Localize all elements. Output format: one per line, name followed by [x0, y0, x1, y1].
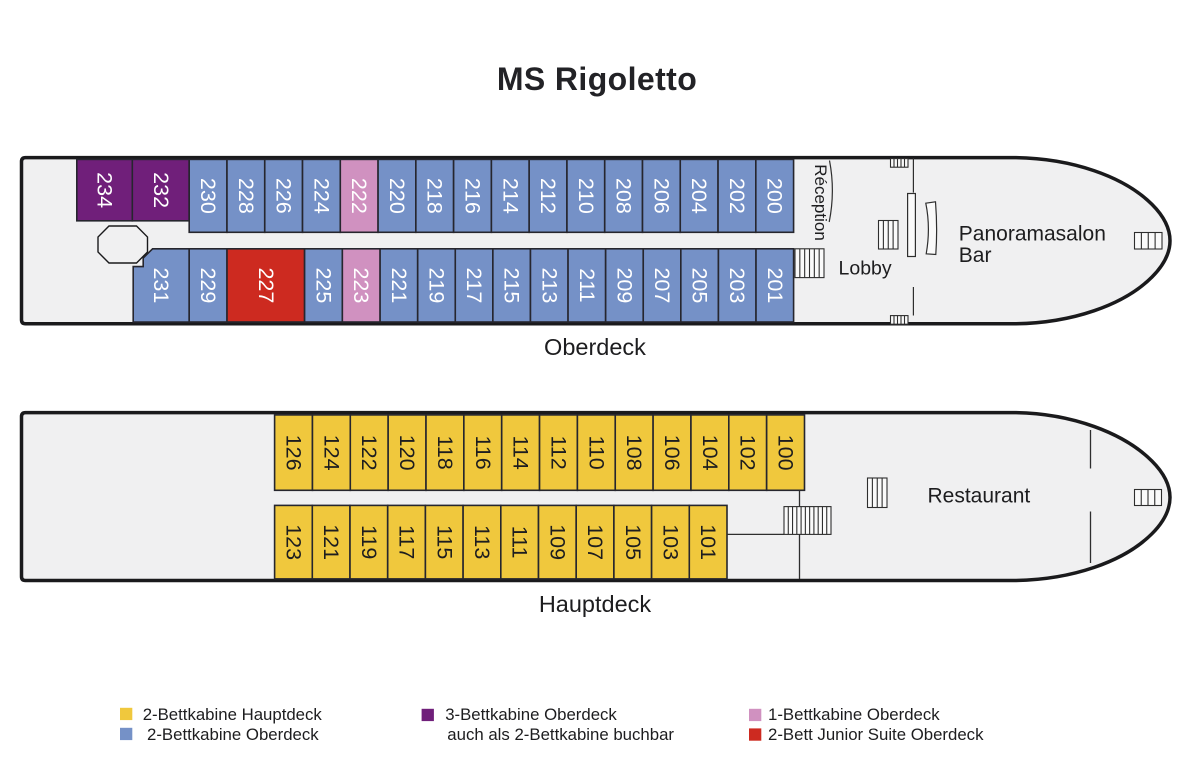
svg-text:3-Bettkabine Oberdeck: 3-Bettkabine Oberdeck [445, 705, 617, 724]
svg-text:102: 102 [736, 435, 760, 471]
svg-text:122: 122 [357, 435, 381, 471]
svg-text:214: 214 [498, 178, 522, 214]
svg-text:208: 208 [612, 178, 636, 214]
svg-text:117: 117 [395, 525, 419, 559]
svg-text:201: 201 [763, 267, 787, 303]
svg-text:103: 103 [658, 524, 682, 560]
svg-text:108: 108 [622, 435, 646, 471]
svg-text:Réception: Réception [811, 164, 830, 241]
svg-text:121: 121 [319, 524, 343, 560]
svg-text:Lobby: Lobby [839, 258, 892, 280]
svg-text:Oberdeck: Oberdeck [544, 334, 646, 360]
svg-text:222: 222 [347, 178, 371, 214]
svg-text:124: 124 [319, 435, 343, 471]
svg-text:118: 118 [433, 435, 457, 469]
svg-text:200: 200 [763, 178, 787, 214]
svg-text:215: 215 [500, 267, 524, 303]
svg-text:234: 234 [93, 172, 117, 208]
svg-text:123: 123 [281, 524, 305, 560]
svg-text:227: 227 [254, 267, 278, 303]
svg-text:224: 224 [309, 178, 333, 214]
svg-text:Panoramasalon: Panoramasalon [959, 223, 1106, 246]
svg-text:111: 111 [508, 526, 532, 559]
svg-text:119: 119 [357, 525, 381, 559]
svg-text:120: 120 [395, 435, 419, 471]
svg-text:106: 106 [660, 435, 684, 471]
svg-text:110: 110 [584, 435, 608, 469]
svg-text:auch als 2-Bettkabine buchbar: auch als 2-Bettkabine buchbar [447, 725, 674, 744]
svg-text:221: 221 [387, 267, 411, 303]
svg-text:101: 101 [696, 524, 720, 560]
svg-text:100: 100 [774, 435, 798, 471]
svg-text:218: 218 [423, 178, 447, 214]
svg-text:113: 113 [470, 525, 494, 559]
svg-text:226: 226 [272, 178, 296, 214]
svg-text:217: 217 [462, 267, 486, 303]
svg-text:104: 104 [698, 435, 722, 471]
svg-text:2-Bettkabine Hauptdeck: 2-Bettkabine Hauptdeck [143, 705, 323, 724]
svg-text:1-Bettkabine Oberdeck: 1-Bettkabine Oberdeck [768, 705, 940, 724]
svg-text:205: 205 [688, 267, 712, 303]
svg-text:209: 209 [612, 267, 636, 303]
svg-text:107: 107 [583, 524, 607, 560]
svg-text:2-Bett Junior Suite Oberdeck: 2-Bett Junior Suite Oberdeck [768, 725, 984, 744]
svg-text:203: 203 [725, 267, 749, 303]
svg-text:105: 105 [621, 524, 645, 560]
svg-text:114: 114 [509, 435, 533, 469]
svg-text:231: 231 [149, 267, 173, 303]
svg-text:207: 207 [650, 267, 674, 303]
svg-text:213: 213 [537, 267, 561, 303]
svg-text:216: 216 [461, 178, 485, 214]
svg-text:Hauptdeck: Hauptdeck [539, 591, 652, 617]
svg-text:211: 211 [575, 268, 599, 302]
svg-text:230: 230 [196, 178, 220, 214]
svg-text:210: 210 [574, 178, 598, 214]
svg-text:229: 229 [196, 267, 220, 303]
svg-text:206: 206 [649, 178, 673, 214]
svg-text:2-Bettkabine Oberdeck: 2-Bettkabine Oberdeck [147, 725, 319, 744]
svg-text:112: 112 [546, 435, 570, 469]
svg-text:220: 220 [385, 178, 409, 214]
svg-text:228: 228 [234, 178, 258, 214]
svg-text:202: 202 [725, 178, 749, 214]
svg-text:232: 232 [149, 172, 173, 208]
svg-text:MS Rigoletto: MS Rigoletto [497, 61, 697, 97]
svg-text:225: 225 [311, 267, 335, 303]
svg-text:Restaurant: Restaurant [928, 485, 1031, 508]
svg-text:109: 109 [545, 524, 569, 560]
svg-text:212: 212 [536, 178, 560, 214]
svg-text:115: 115 [432, 525, 456, 559]
svg-text:Bar: Bar [959, 244, 992, 267]
svg-text:116: 116 [471, 435, 495, 469]
svg-text:126: 126 [282, 435, 306, 471]
svg-text:223: 223 [349, 267, 373, 303]
svg-text:204: 204 [687, 178, 711, 214]
svg-text:219: 219 [424, 267, 448, 303]
